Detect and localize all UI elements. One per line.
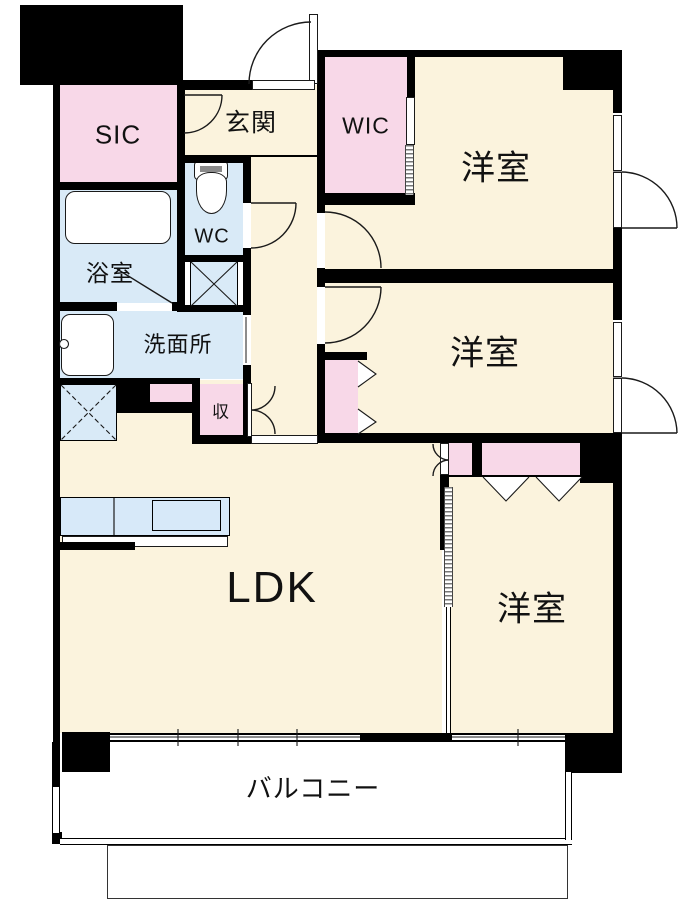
wall-right-c bbox=[613, 433, 622, 443]
balcony-right-edge bbox=[565, 772, 572, 840]
wall-hall-left-3 bbox=[243, 365, 251, 383]
wall-closet-divider bbox=[472, 443, 482, 476]
wall-right-b bbox=[613, 228, 622, 320]
right-door2 bbox=[622, 378, 677, 433]
wall-bedroom2-bottom bbox=[317, 433, 613, 443]
label-wc: WC bbox=[194, 226, 229, 249]
closet-bedroom-bottom bbox=[482, 443, 580, 475]
ldk-entry-sill bbox=[251, 435, 318, 444]
kitchen-sink bbox=[152, 500, 221, 531]
wic-folding-door bbox=[405, 145, 414, 195]
wic-door-leaf bbox=[406, 97, 415, 145]
wall-wic-right bbox=[407, 57, 415, 97]
floor-plan: SIC 玄関 WIC 洋室 WC 浴室 洗面所 洋室 収 LDK 洋室 バルコニ… bbox=[0, 0, 700, 914]
corner-bottom-left bbox=[62, 732, 110, 772]
wall-hall-right-2 bbox=[317, 268, 325, 287]
wall-vert-192 bbox=[192, 378, 200, 443]
wall-right-d bbox=[613, 483, 622, 733]
kitchen-base-wall bbox=[57, 542, 135, 550]
wall-hall-left-1 bbox=[243, 163, 251, 203]
wall-below-shaft bbox=[183, 305, 251, 312]
closet-small-ldk bbox=[449, 443, 472, 475]
pillar-top-left bbox=[20, 5, 183, 85]
wall-bedrooms-1-2 bbox=[325, 269, 613, 283]
balcony-front-edge bbox=[60, 838, 572, 845]
wall-sic-bottom bbox=[53, 182, 183, 190]
wall-bath-bottom-l bbox=[53, 302, 117, 311]
label-sic: SIC bbox=[95, 120, 141, 151]
partition-sliding-door bbox=[444, 487, 453, 607]
wall-under-linen bbox=[150, 402, 192, 413]
wall-hall-right-3 bbox=[317, 344, 325, 443]
pipe-shaft-lower bbox=[60, 384, 117, 441]
closet-bedroom-middle bbox=[325, 360, 358, 435]
ldk-balcony-window bbox=[110, 733, 360, 742]
label-storage: 収 bbox=[212, 398, 230, 423]
wall-hall-right-1 bbox=[317, 55, 325, 213]
wc-doorway bbox=[243, 203, 251, 248]
door1-right-leaf bbox=[613, 172, 622, 228]
wall-closet-mid-top bbox=[325, 352, 367, 360]
label-wic: WIC bbox=[342, 113, 390, 140]
label-bedroom-middle: 洋室 bbox=[450, 326, 520, 375]
wall-block-kitchen bbox=[117, 380, 150, 413]
entrance-door-arc bbox=[249, 22, 311, 84]
label-washroom: 洗面所 bbox=[143, 327, 212, 359]
label-balcony: バルコニー bbox=[246, 769, 380, 806]
closet-bottom-line bbox=[440, 475, 580, 477]
wall-sic-right bbox=[177, 85, 185, 312]
wall-hall-left-2 bbox=[243, 248, 251, 315]
wall-genkan-top bbox=[177, 80, 253, 90]
wall-wc-top bbox=[183, 155, 251, 163]
storage-door-leaf bbox=[247, 383, 252, 437]
window1-leaf bbox=[613, 115, 622, 171]
bedroom-bottom-balcony-window bbox=[452, 733, 565, 742]
wall-right-a bbox=[613, 57, 622, 113]
label-bedroom-bottom: 洋室 bbox=[497, 582, 567, 631]
linen-storage bbox=[150, 381, 192, 402]
right-door1 bbox=[622, 172, 677, 228]
wall-wic-bottom bbox=[317, 193, 415, 205]
washroom-doorway bbox=[243, 315, 251, 365]
wall-bottom-mid bbox=[360, 733, 452, 742]
window2-leaf bbox=[613, 322, 622, 377]
door2-right-leaf bbox=[613, 378, 622, 433]
balcony-left-window bbox=[52, 787, 60, 833]
corner-bottom-right bbox=[565, 733, 622, 773]
balcony-left-wall bbox=[52, 742, 60, 787]
genkan-step-line bbox=[251, 155, 317, 157]
label-genkan: 玄関 bbox=[225, 103, 277, 139]
porch-sill bbox=[252, 80, 315, 90]
bathtub bbox=[65, 191, 171, 244]
entrance-door-leaf bbox=[309, 14, 318, 84]
wall-bath-bottom-r bbox=[172, 302, 183, 311]
pillar-right-mid bbox=[580, 443, 622, 483]
toilet-lid-bar bbox=[200, 166, 222, 172]
balcony-lower-slab bbox=[107, 845, 568, 899]
partition-thin-line bbox=[446, 607, 451, 733]
label-ldk: LDK bbox=[226, 563, 318, 613]
bedroom-mid-doorway bbox=[317, 287, 325, 344]
label-bedroom-top: 洋室 bbox=[461, 141, 531, 190]
bedroom-top-doorway bbox=[317, 213, 325, 268]
washbasin bbox=[61, 314, 114, 376]
pipe-shaft-upper bbox=[190, 261, 238, 307]
closet-small-door-leaf bbox=[440, 443, 449, 475]
label-bathroom: 浴室 bbox=[86, 254, 134, 288]
wall-wc-bottom bbox=[183, 255, 251, 262]
bath-doorway bbox=[117, 303, 172, 311]
wall-storage-bottom bbox=[192, 435, 253, 444]
